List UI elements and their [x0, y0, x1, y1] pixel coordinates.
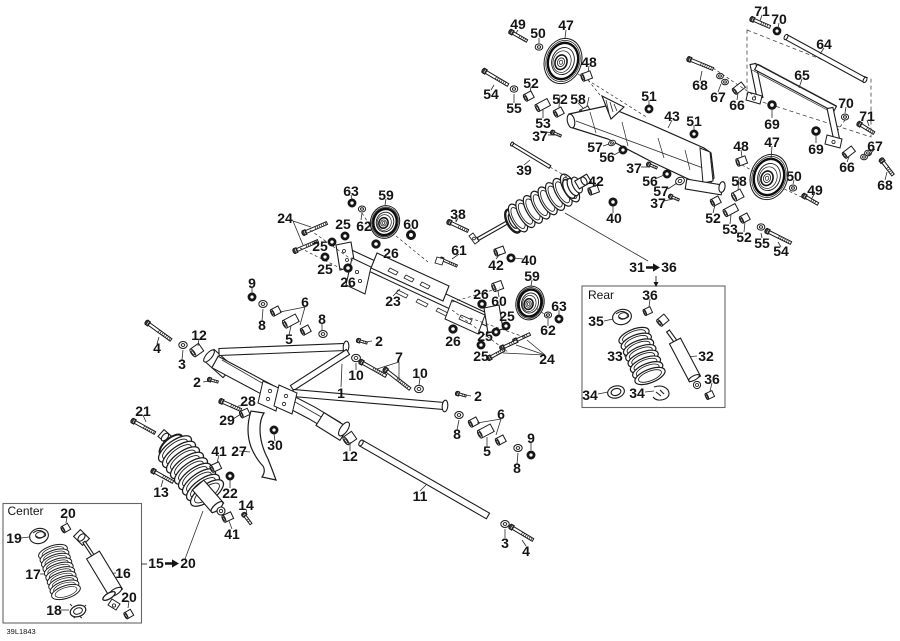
svg-text:40: 40 [521, 252, 537, 268]
svg-text:37: 37 [532, 128, 548, 144]
svg-text:Rear: Rear [588, 288, 614, 302]
svg-text:25: 25 [317, 261, 333, 277]
svg-text:8: 8 [318, 311, 326, 327]
svg-text:32: 32 [698, 348, 714, 364]
svg-text:25: 25 [499, 308, 515, 324]
svg-text:10: 10 [412, 365, 428, 381]
svg-text:59: 59 [524, 268, 540, 284]
svg-text:36: 36 [642, 287, 658, 303]
svg-text:4: 4 [522, 543, 530, 559]
svg-text:14: 14 [238, 497, 254, 513]
svg-text:59: 59 [378, 187, 394, 203]
svg-text:60: 60 [491, 293, 507, 309]
svg-text:41: 41 [211, 443, 227, 459]
svg-text:4: 4 [153, 340, 161, 356]
svg-text:49: 49 [510, 16, 526, 32]
svg-text:55: 55 [754, 235, 770, 251]
svg-text:37: 37 [650, 195, 666, 211]
svg-text:34: 34 [629, 385, 645, 401]
svg-text:47: 47 [558, 17, 574, 33]
svg-text:55: 55 [506, 100, 522, 116]
svg-text:68: 68 [692, 77, 708, 93]
svg-text:63: 63 [343, 183, 359, 199]
svg-text:11: 11 [413, 488, 428, 504]
svg-text:2: 2 [375, 333, 383, 349]
svg-text:67: 67 [867, 138, 883, 154]
svg-text:Center: Center [8, 504, 44, 518]
svg-text:2: 2 [193, 374, 201, 390]
svg-text:36: 36 [704, 371, 720, 387]
svg-text:12: 12 [342, 448, 358, 464]
svg-text:62: 62 [540, 322, 556, 338]
svg-text:16: 16 [115, 565, 131, 581]
svg-text:8: 8 [453, 426, 461, 442]
svg-text:19: 19 [6, 530, 22, 546]
svg-text:9: 9 [527, 430, 535, 446]
svg-text:68: 68 [877, 177, 893, 193]
svg-text:50: 50 [530, 25, 546, 41]
svg-text:48: 48 [581, 54, 597, 70]
svg-text:41: 41 [224, 526, 240, 542]
svg-text:3: 3 [178, 356, 186, 372]
svg-text:26: 26 [383, 245, 399, 261]
svg-text:20: 20 [121, 589, 137, 605]
svg-text:66: 66 [839, 159, 855, 175]
svg-text:24: 24 [539, 351, 555, 367]
svg-text:8: 8 [258, 317, 266, 333]
svg-text:20: 20 [180, 555, 196, 571]
svg-text:52: 52 [705, 210, 721, 226]
svg-text:35: 35 [588, 313, 604, 329]
svg-text:26: 26 [445, 333, 461, 349]
svg-text:58: 58 [570, 91, 586, 107]
svg-text:10: 10 [348, 367, 364, 383]
svg-text:25: 25 [473, 348, 489, 364]
svg-text:39: 39 [516, 162, 532, 178]
svg-text:49: 49 [807, 182, 823, 198]
svg-text:42: 42 [488, 257, 504, 273]
svg-text:42: 42 [588, 173, 604, 189]
svg-text:6: 6 [497, 406, 505, 422]
svg-text:63: 63 [551, 298, 567, 314]
svg-text:70: 70 [771, 11, 787, 27]
svg-text:6: 6 [301, 294, 309, 310]
svg-text:69: 69 [764, 116, 780, 132]
svg-text:36: 36 [661, 259, 677, 275]
svg-text:28: 28 [240, 393, 256, 409]
svg-text:54: 54 [773, 243, 789, 259]
svg-text:34: 34 [582, 387, 598, 403]
svg-text:27: 27 [231, 443, 247, 459]
svg-text:17: 17 [25, 566, 41, 582]
svg-text:61: 61 [451, 242, 467, 258]
svg-text:51: 51 [686, 113, 702, 129]
svg-text:69: 69 [808, 141, 824, 157]
svg-text:26: 26 [473, 286, 489, 302]
svg-text:60: 60 [403, 216, 419, 232]
svg-text:39L1843: 39L1843 [7, 627, 36, 636]
svg-text:71: 71 [754, 3, 770, 19]
svg-text:37: 37 [626, 160, 642, 176]
svg-text:64: 64 [816, 36, 832, 52]
svg-text:26: 26 [340, 274, 356, 290]
svg-text:52: 52 [736, 229, 752, 245]
svg-text:22: 22 [222, 485, 238, 501]
svg-text:40: 40 [606, 210, 622, 226]
svg-text:70: 70 [838, 95, 854, 111]
svg-text:5: 5 [285, 331, 293, 347]
svg-text:3: 3 [501, 535, 509, 551]
svg-text:29: 29 [219, 412, 235, 428]
svg-text:8: 8 [513, 460, 521, 476]
svg-text:24: 24 [277, 210, 293, 226]
svg-text:62: 62 [356, 218, 372, 234]
svg-text:7: 7 [395, 349, 403, 365]
svg-text:56: 56 [599, 149, 615, 165]
svg-text:12: 12 [191, 327, 207, 343]
svg-text:25: 25 [477, 328, 493, 344]
svg-text:20: 20 [60, 505, 76, 521]
svg-text:33: 33 [607, 348, 623, 364]
svg-text:47: 47 [764, 134, 780, 150]
svg-text:25: 25 [312, 238, 328, 254]
svg-text:23: 23 [385, 293, 401, 309]
svg-text:15: 15 [148, 555, 164, 571]
svg-text:65: 65 [794, 67, 810, 83]
svg-text:58: 58 [731, 173, 747, 189]
svg-text:52: 52 [552, 91, 568, 107]
svg-text:21: 21 [135, 403, 151, 419]
svg-text:30: 30 [267, 437, 283, 453]
svg-text:31: 31 [629, 259, 645, 275]
svg-text:71: 71 [859, 108, 875, 124]
svg-text:50: 50 [786, 168, 802, 184]
svg-text:48: 48 [733, 138, 749, 154]
svg-text:9: 9 [248, 275, 256, 291]
svg-text:1: 1 [337, 385, 345, 401]
svg-text:18: 18 [46, 602, 62, 618]
svg-text:2: 2 [474, 388, 482, 404]
svg-text:66: 66 [729, 97, 745, 113]
svg-text:51: 51 [641, 88, 657, 104]
svg-text:38: 38 [450, 206, 466, 222]
svg-text:13: 13 [153, 484, 169, 500]
svg-text:54: 54 [483, 86, 499, 102]
svg-text:25: 25 [335, 216, 351, 232]
svg-text:43: 43 [664, 108, 680, 124]
svg-text:52: 52 [523, 75, 539, 91]
svg-text:67: 67 [710, 89, 726, 105]
svg-text:5: 5 [483, 443, 491, 459]
